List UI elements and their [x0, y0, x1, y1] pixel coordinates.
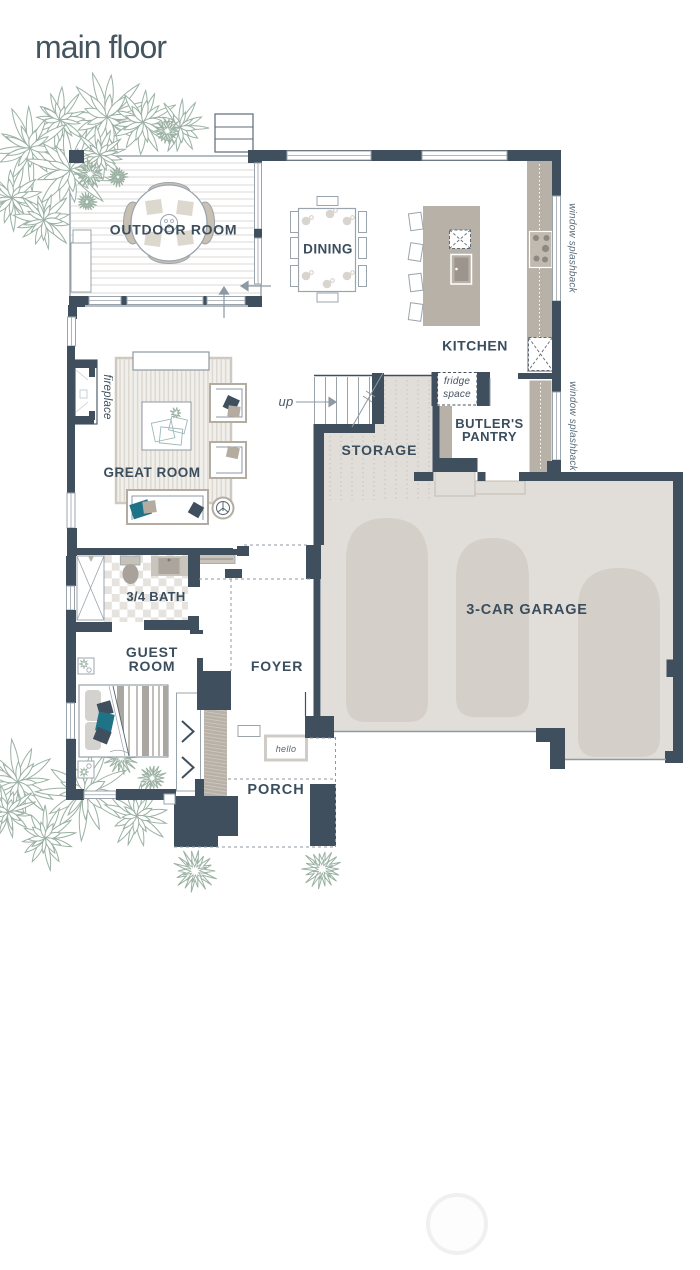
svg-text:PORCH: PORCH — [247, 782, 304, 798]
svg-text:up: up — [278, 394, 293, 409]
svg-text:main floor: main floor — [35, 29, 167, 65]
svg-text:3-CAR GARAGE: 3-CAR GARAGE — [466, 602, 588, 618]
svg-text:KITCHEN: KITCHEN — [442, 338, 508, 354]
svg-text:fireplace: fireplace — [101, 374, 113, 419]
svg-text:window splashback: window splashback — [567, 381, 578, 471]
svg-text:PANTRY: PANTRY — [462, 429, 517, 444]
svg-text:GREAT ROOM: GREAT ROOM — [104, 465, 201, 480]
svg-text:FOYER: FOYER — [251, 658, 303, 674]
svg-text:DINING: DINING — [303, 242, 353, 257]
svg-text:STORAGE: STORAGE — [342, 442, 418, 458]
svg-text:ROOM: ROOM — [129, 658, 176, 674]
svg-text:space: space — [443, 389, 471, 400]
svg-text:3/4 BATH: 3/4 BATH — [126, 589, 185, 604]
svg-text:fridge: fridge — [444, 376, 470, 387]
svg-text:window splashback: window splashback — [567, 203, 578, 293]
svg-text:hello: hello — [276, 744, 297, 754]
svg-text:OUTDOOR ROOM: OUTDOOR ROOM — [110, 222, 237, 238]
